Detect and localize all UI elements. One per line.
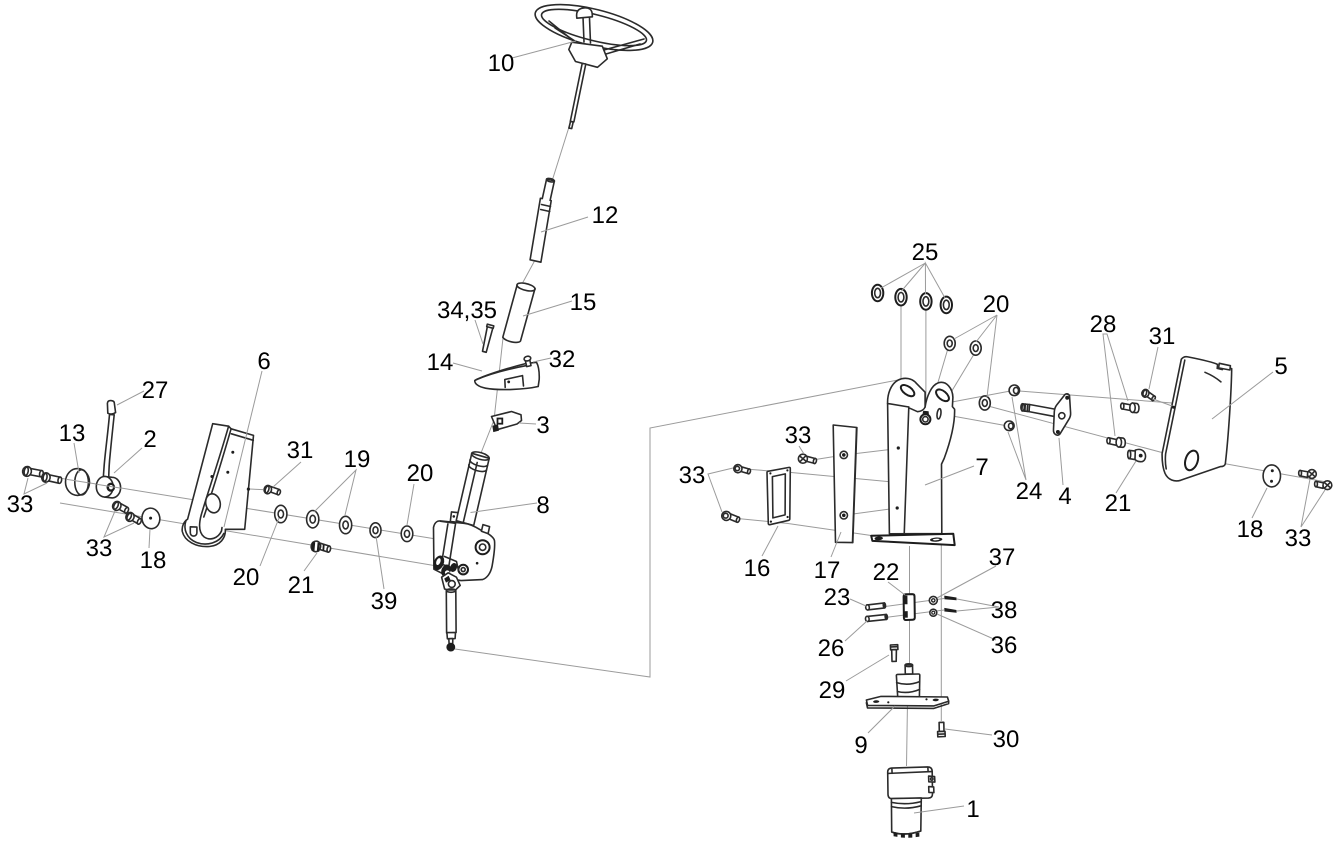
svg-text:26: 26 (818, 635, 845, 662)
svg-text:7: 7 (975, 454, 988, 481)
svg-text:2: 2 (143, 426, 156, 453)
svg-text:14: 14 (427, 349, 454, 376)
svg-text:33: 33 (86, 535, 113, 562)
svg-text:21: 21 (1105, 490, 1132, 517)
svg-text:34,35: 34,35 (437, 297, 497, 324)
svg-text:9: 9 (854, 732, 867, 759)
svg-text:5: 5 (1274, 353, 1287, 380)
svg-text:17: 17 (814, 557, 841, 584)
svg-text:24: 24 (1016, 478, 1043, 505)
svg-text:18: 18 (140, 547, 167, 574)
svg-text:32: 32 (549, 346, 576, 373)
svg-text:30: 30 (993, 726, 1020, 753)
svg-text:22: 22 (873, 559, 900, 586)
svg-text:29: 29 (819, 677, 846, 704)
svg-text:20: 20 (233, 564, 260, 591)
svg-text:3: 3 (536, 412, 549, 439)
svg-text:33: 33 (1285, 525, 1312, 552)
svg-text:23: 23 (824, 584, 851, 611)
svg-text:33: 33 (679, 462, 706, 489)
svg-text:15: 15 (570, 289, 597, 316)
svg-text:39: 39 (371, 588, 398, 615)
svg-text:18: 18 (1237, 516, 1264, 543)
svg-text:6: 6 (257, 348, 270, 375)
svg-text:19: 19 (344, 446, 371, 473)
svg-text:20: 20 (983, 291, 1010, 318)
svg-text:20: 20 (407, 460, 434, 487)
svg-text:31: 31 (287, 437, 314, 464)
svg-text:8: 8 (536, 492, 549, 519)
svg-text:27: 27 (142, 377, 169, 404)
svg-text:31: 31 (1149, 323, 1176, 350)
svg-text:12: 12 (592, 202, 619, 229)
svg-text:16: 16 (744, 555, 771, 582)
svg-text:37: 37 (989, 544, 1016, 571)
svg-text:33: 33 (7, 491, 34, 518)
svg-text:1: 1 (966, 796, 979, 823)
svg-text:28: 28 (1090, 311, 1117, 338)
svg-text:36: 36 (991, 632, 1018, 659)
svg-text:33: 33 (785, 422, 812, 449)
svg-text:25: 25 (912, 239, 939, 266)
svg-text:4: 4 (1058, 483, 1071, 510)
svg-text:13: 13 (59, 420, 86, 447)
svg-text:21: 21 (288, 572, 315, 599)
svg-text:38: 38 (991, 597, 1018, 624)
svg-text:10: 10 (488, 50, 515, 77)
